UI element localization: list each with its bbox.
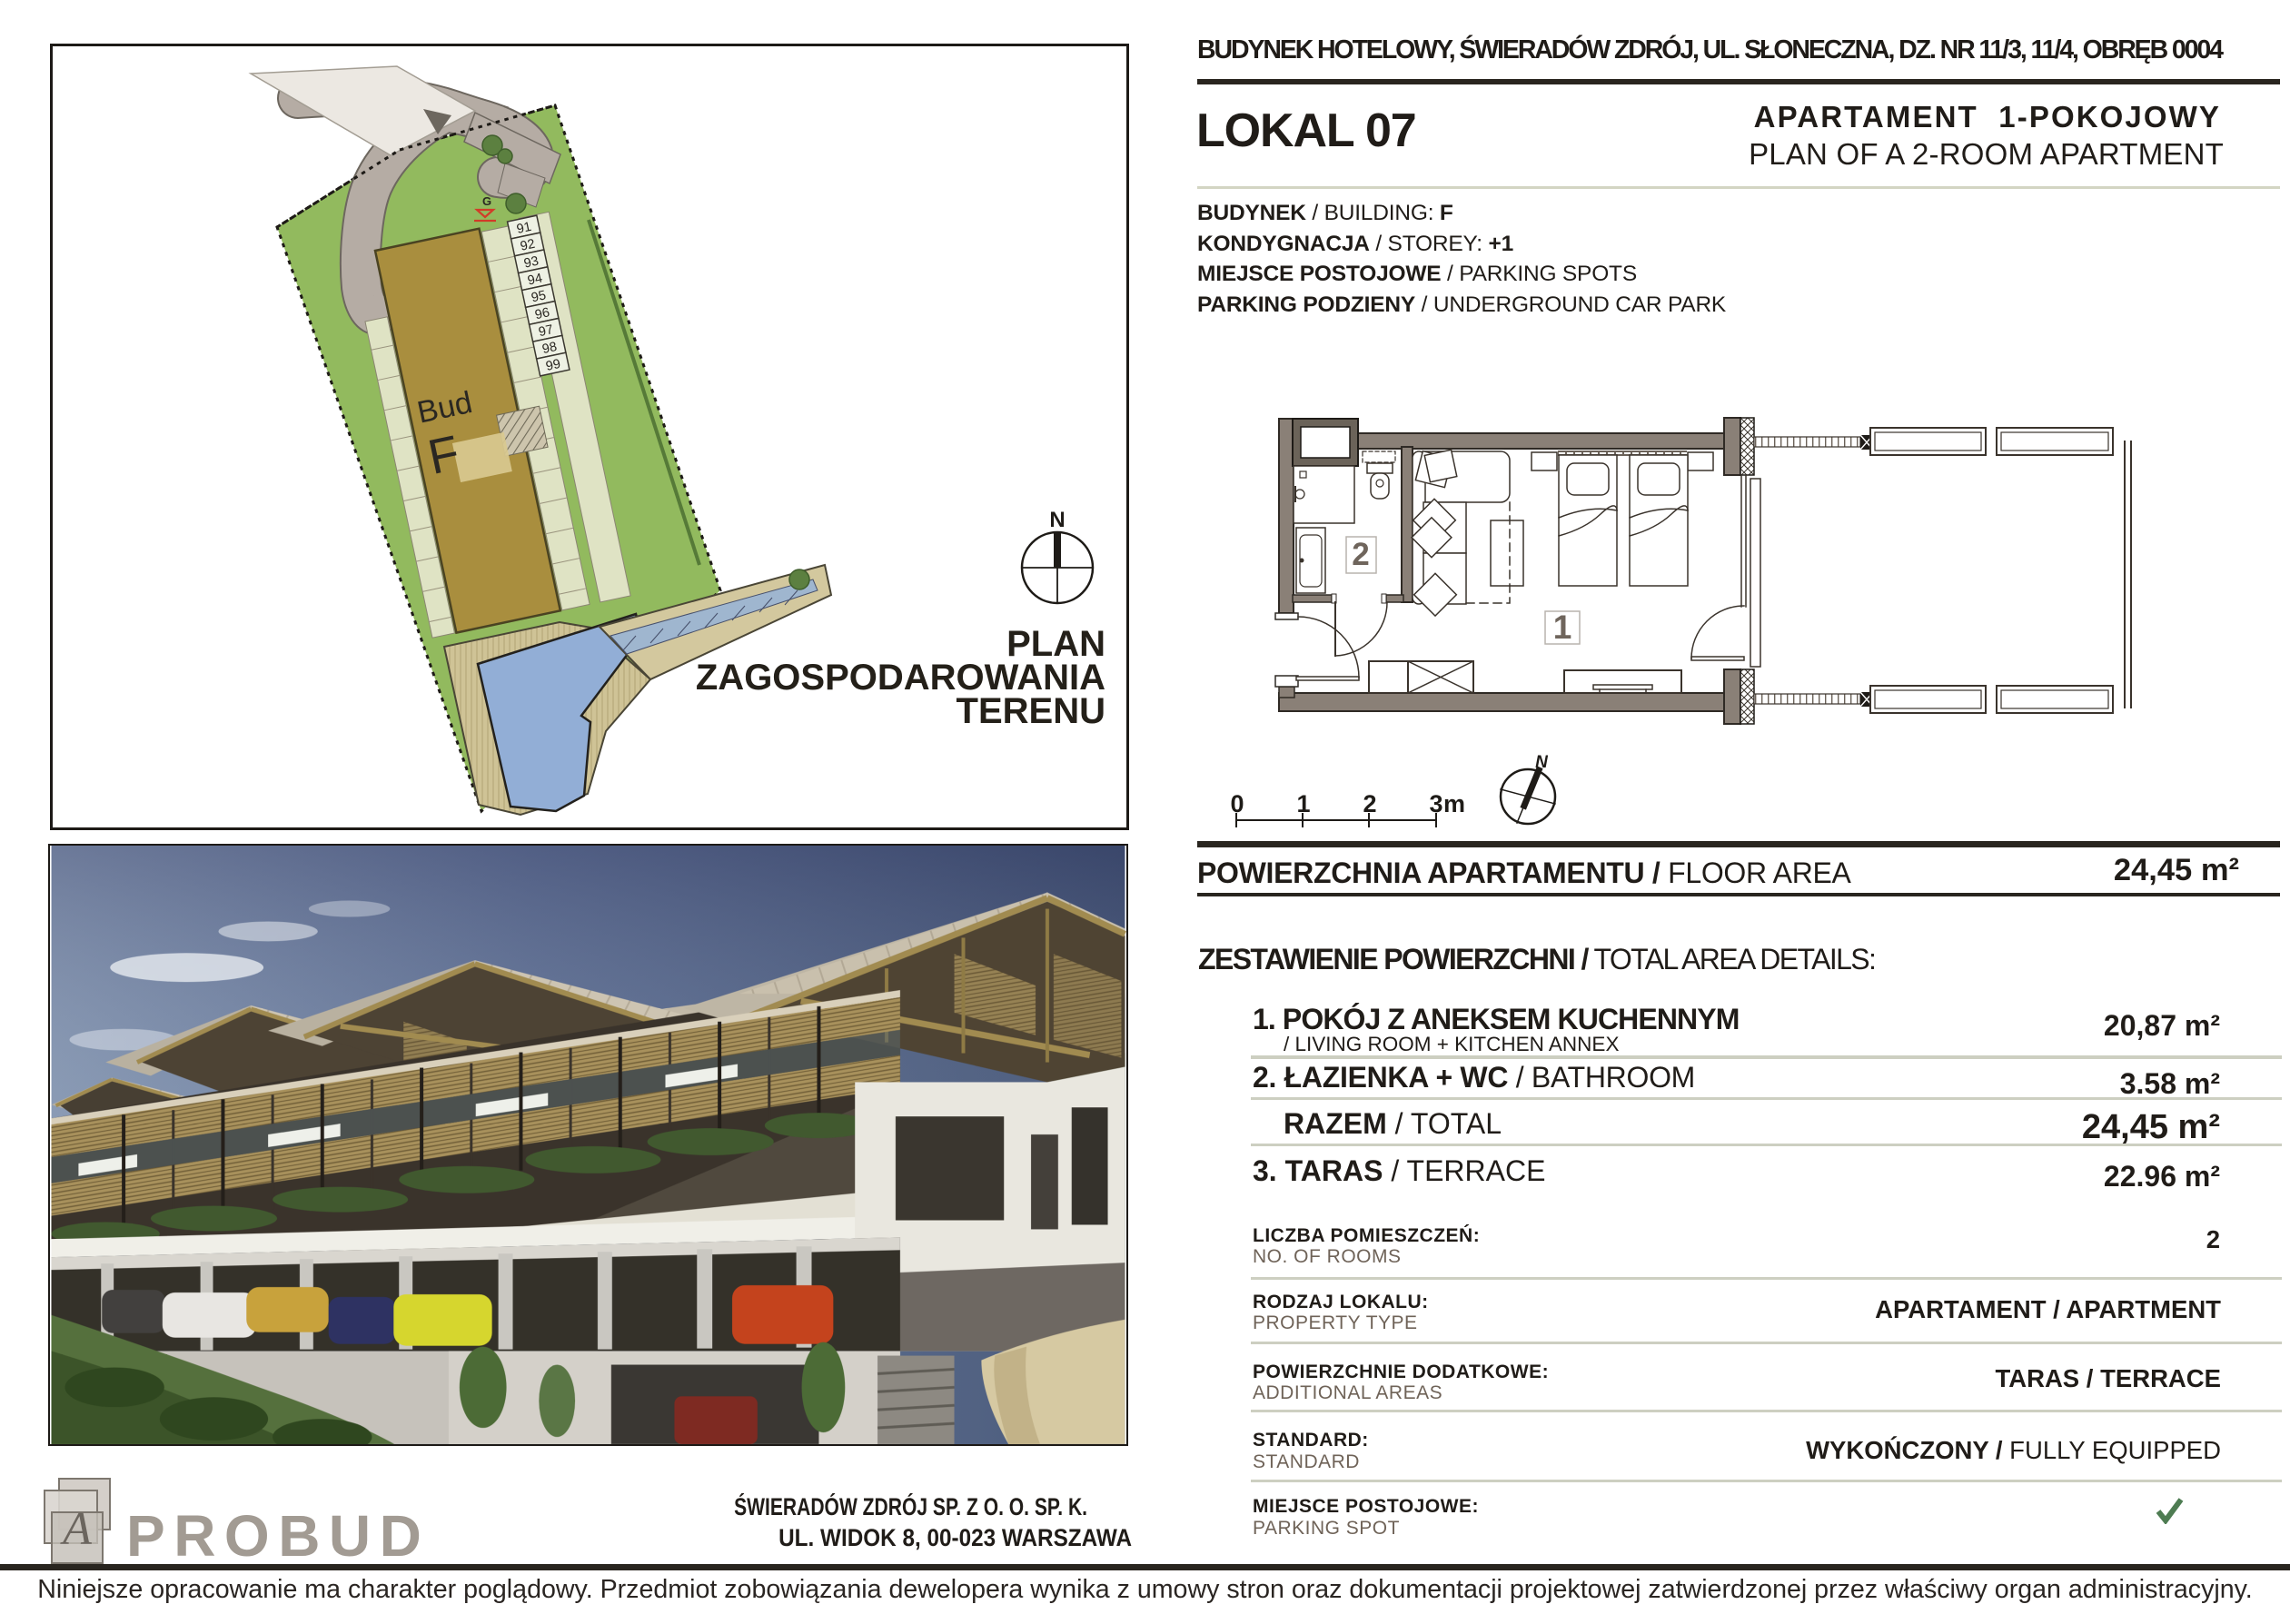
svg-text:PROBUD: PROBUD [126,1503,430,1569]
svg-text:TERENU: TERENU [957,691,1105,731]
svg-text:96: 96 [533,305,550,322]
svg-text:99: 99 [545,357,562,374]
svg-text:2: 2 [1352,537,1369,572]
svg-text:94: 94 [526,272,543,289]
svg-text:m: m [1443,790,1465,817]
svg-text:G: G [482,194,491,208]
svg-text:A: A [60,1503,92,1555]
svg-text:91: 91 [515,220,532,237]
svg-text:N: N [1049,508,1065,532]
svg-text:98: 98 [540,340,558,357]
svg-text:1: 1 [1553,609,1572,646]
svg-text:N: N [1535,753,1549,772]
svg-text:97: 97 [537,322,554,340]
svg-text:95: 95 [530,288,547,305]
svg-text:92: 92 [519,237,536,254]
svg-text:93: 93 [522,254,540,272]
